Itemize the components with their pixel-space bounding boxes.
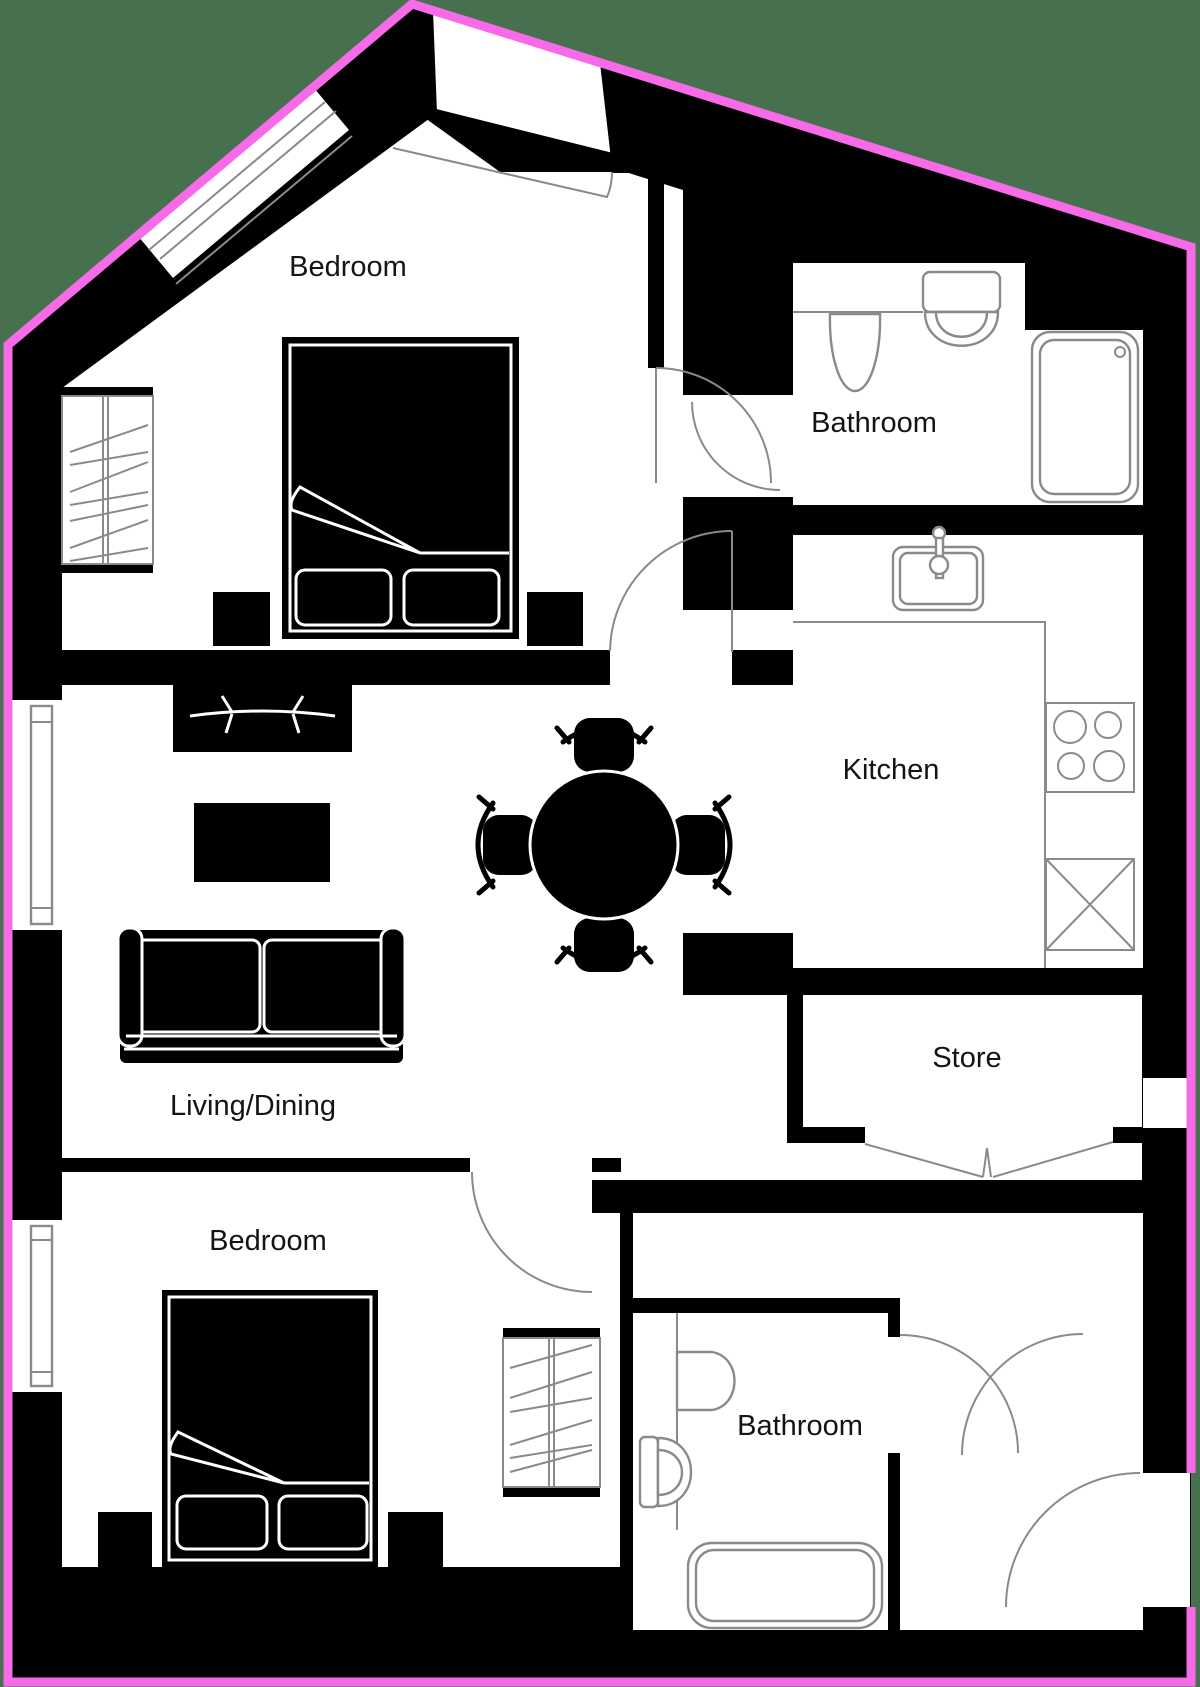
tv-unit-icon (173, 685, 352, 752)
nightstand-icon (388, 1512, 443, 1567)
floorplan: Bedroom Bathroom Kitchen Store Living/Di… (0, 0, 1200, 1687)
room-label-store: Store (932, 1042, 1001, 1074)
window-left-bedroom (11, 1220, 62, 1392)
room-label-bedroom-bottom: Bedroom (209, 1225, 327, 1257)
room-label-bathroom-bottom: Bathroom (737, 1410, 863, 1442)
sofa-icon (118, 928, 405, 1063)
toilet-bottom-icon (640, 1437, 691, 1507)
nightstand-icon (213, 592, 270, 646)
bathtub-top-icon (1032, 332, 1138, 502)
double-bed-icon (162, 1290, 378, 1567)
room-label-bedroom-top: Bedroom (289, 251, 407, 283)
room-label-kitchen: Kitchen (843, 754, 940, 786)
nightstand-icon (98, 1512, 152, 1567)
basin-icon (677, 1352, 735, 1410)
coffee-table-icon (194, 803, 330, 882)
nightstand-icon (527, 592, 583, 646)
toilet-top-icon (923, 272, 1000, 346)
bathtub-bottom-icon (688, 1543, 882, 1628)
room-label-living-dining: Living/Dining (170, 1090, 336, 1122)
window-left-living (11, 700, 62, 930)
room-label-bathroom-top: Bathroom (811, 407, 937, 439)
double-bed-icon (282, 337, 519, 639)
